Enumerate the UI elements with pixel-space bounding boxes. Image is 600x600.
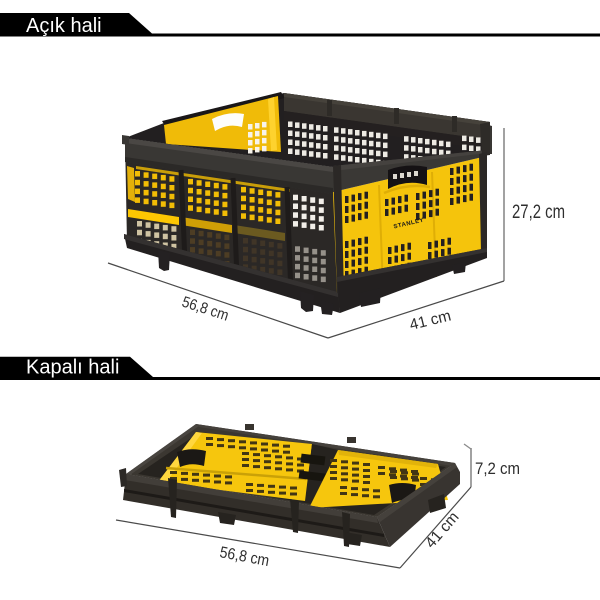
svg-text:27,2 cm: 27,2 cm [512, 202, 565, 223]
svg-text:7,2 cm: 7,2 cm [475, 459, 520, 478]
svg-text:Açık hali: Açık hali [26, 15, 102, 37]
svg-text:Kapalı hali: Kapalı hali [26, 357, 119, 379]
